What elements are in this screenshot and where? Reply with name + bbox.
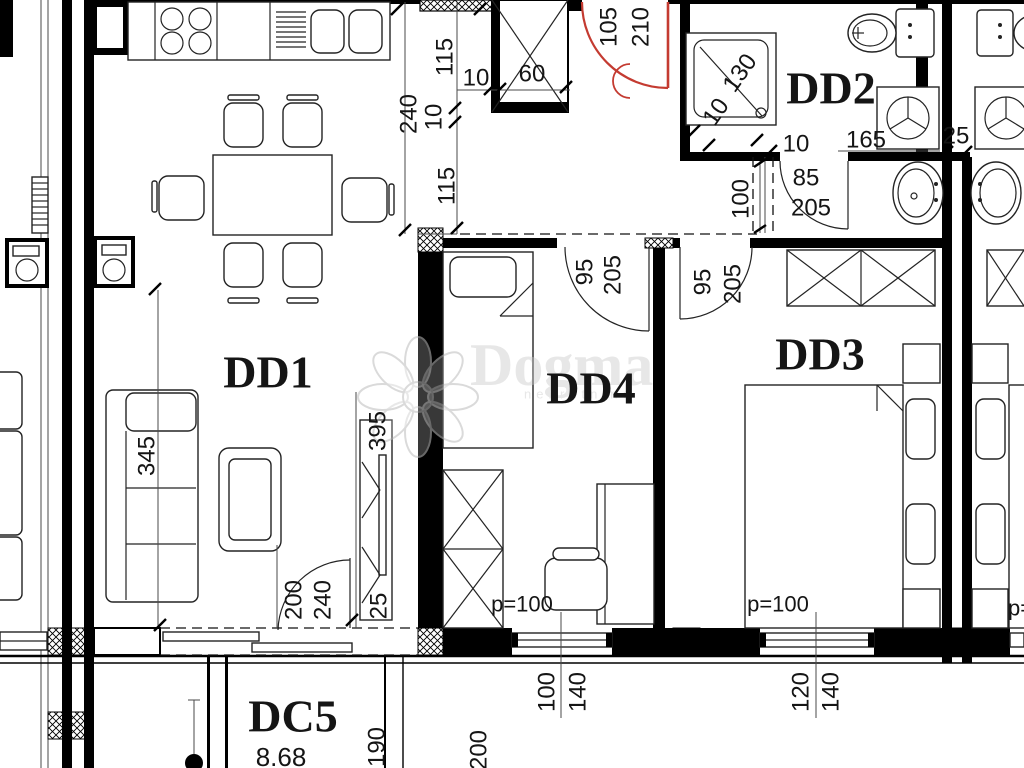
dim-240-kitchen: 240 [396,94,423,134]
door-dd3-width: 95 [690,269,717,296]
dim-115-a: 115 [432,38,459,76]
desk-chair-dd4 [545,548,607,610]
washer-dd2 [877,87,939,149]
bedroom-neighbor [972,250,1024,628]
window-dd3 [760,633,874,647]
door-entry-width: 105 [596,7,623,47]
dim-165-bath: 165 [846,127,886,154]
window-dd4 [512,633,612,647]
radiator-icon [32,177,48,233]
washing-machine-neighbor [7,240,47,286]
door-dd3-height: 205 [720,264,747,304]
dim-100-hall: 100 [728,179,755,219]
parapet-dd4: p=100 [491,592,553,617]
dim-200-terrace: 200 [466,730,493,768]
dim-10-bath: 10 [783,131,810,158]
bathroom-neighbor [971,10,1024,224]
kitchen-counter [128,2,390,60]
door-dd4-height: 205 [600,255,627,295]
washing-machine [95,238,133,286]
area-label-dc5: 8.68 [256,742,307,768]
window-neighbor-left [0,632,47,650]
room-label-dc5: DC5 [248,691,337,742]
window-neighbor [1010,633,1024,647]
dim-25-bath: 25 [943,123,970,150]
dim-25-board: 25 [366,593,393,620]
sofa-neighbor [0,372,22,600]
dim-10-shaft-wall: 10 [463,65,490,92]
toilet [848,9,934,57]
window-dd4-width: 100 [534,672,561,712]
sink-drainer-icon [276,10,382,53]
door-entry-height: 210 [628,7,655,47]
parapet-neighbor: p=100 [1008,596,1024,621]
door-dd2-height: 205 [791,195,831,222]
room-label-dd4: DD4 [546,363,635,414]
floorplan-canvas: Dogma nekretnine DD1 DD2 DD3 DD4 DC5 8.6… [0,0,1024,768]
wardrobe-dd3 [787,250,935,306]
room-label-dd2: DD2 [786,63,875,114]
door-dd4-width: 95 [572,259,599,286]
door-terrace-width: 200 [281,580,308,620]
dim-190-terrace: 190 [364,727,391,767]
dim-395-board: 395 [365,411,392,451]
shaft [492,0,568,112]
dim-10-b: 10 [421,104,448,131]
door-dd2-width: 85 [793,165,820,192]
parapet-dd3: p=100 [747,592,809,617]
sink-dd2 [893,162,943,224]
dining-table [152,95,394,303]
level-marker-icon [185,754,203,768]
sofa [106,390,198,602]
room-label-dd3: DD3 [775,329,864,380]
door-terrace-height: 240 [310,580,337,620]
dim-60-shaft: 60 [519,61,546,88]
window-dd3-width: 120 [788,672,815,712]
hall-guides [460,157,773,234]
coffee-table [219,448,281,551]
window-dd3-height: 140 [818,672,845,712]
floorplan-svg: Dogma nekretnine DD1 DD2 DD3 DD4 DC5 8.6… [0,0,1024,768]
dim-115-b: 115 [434,167,461,205]
window-dd4-height: 140 [565,672,592,712]
bed-dd3 [745,344,940,628]
dim-345-sofa: 345 [134,436,161,476]
room-label-dd1: DD1 [223,347,312,398]
